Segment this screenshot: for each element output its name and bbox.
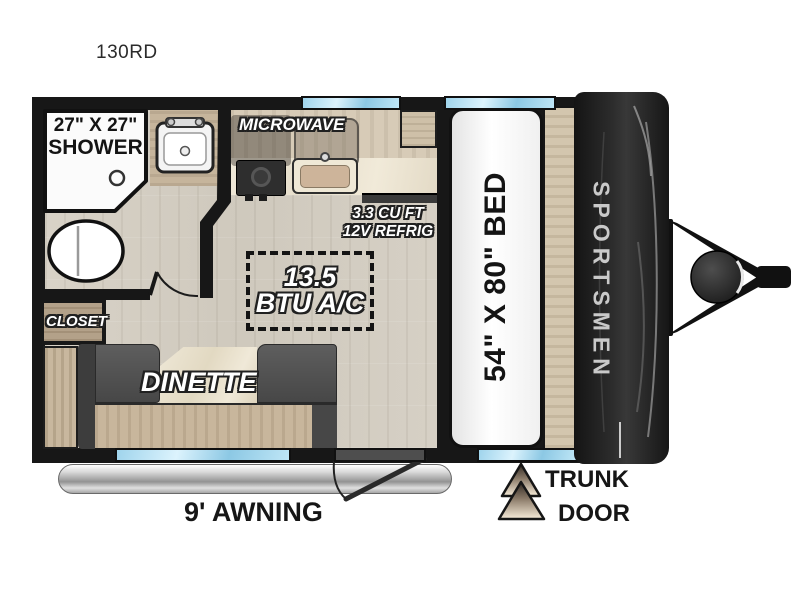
entry-door (334, 448, 426, 462)
faucet-handle-icon (168, 119, 175, 126)
bathroom-bottom-wall (40, 289, 150, 300)
window (444, 96, 556, 110)
refrigerator-label: 3.3 CU FT 12V REFRIG (338, 205, 438, 241)
window (477, 448, 578, 462)
microwave-label: MICROWAVE (239, 115, 344, 135)
ac-type-text: BTU A/C (256, 290, 365, 317)
refrig-size-text: 3.3 CU FT (338, 205, 438, 223)
propane-tank-icon (691, 251, 743, 303)
entry-door-panel (346, 459, 424, 499)
hitch-coupler (756, 266, 791, 288)
toilet (49, 221, 123, 281)
dinette-label: DINETTE (141, 367, 257, 398)
kitchen-faucet-icon (321, 153, 329, 161)
window (301, 96, 401, 110)
closet-label: CLOSET (46, 313, 107, 330)
ac-unit-box: 13.5 BTU A/C (246, 251, 374, 331)
entry-door-swing-arc (334, 461, 346, 499)
shower-text: SHOWER (45, 137, 146, 160)
floorplan-vector-overlay (0, 0, 800, 600)
window (115, 448, 291, 462)
bathroom-door-panel (150, 272, 157, 295)
bed-label: 54" X 80" BED (479, 172, 513, 382)
bathroom-door-swing-arc (157, 272, 198, 296)
floorplan-canvas: 130RD (0, 0, 800, 600)
shower-label: 27" X 27" SHOWER (45, 116, 146, 159)
awning-label: 9' AWNING (184, 497, 323, 528)
trunk-door-label: DOOR (558, 500, 630, 528)
brand-label: SPORTSMEN (588, 181, 615, 381)
sink-drain-icon (181, 147, 190, 156)
trunk-label: TRUNK (545, 466, 629, 494)
refrig-type-text: 12V REFRIG (338, 223, 438, 241)
ac-btu-text: 13.5 (284, 265, 337, 291)
shower-size-text: 27" X 27" (45, 116, 146, 137)
faucet-handle-icon (196, 119, 203, 126)
